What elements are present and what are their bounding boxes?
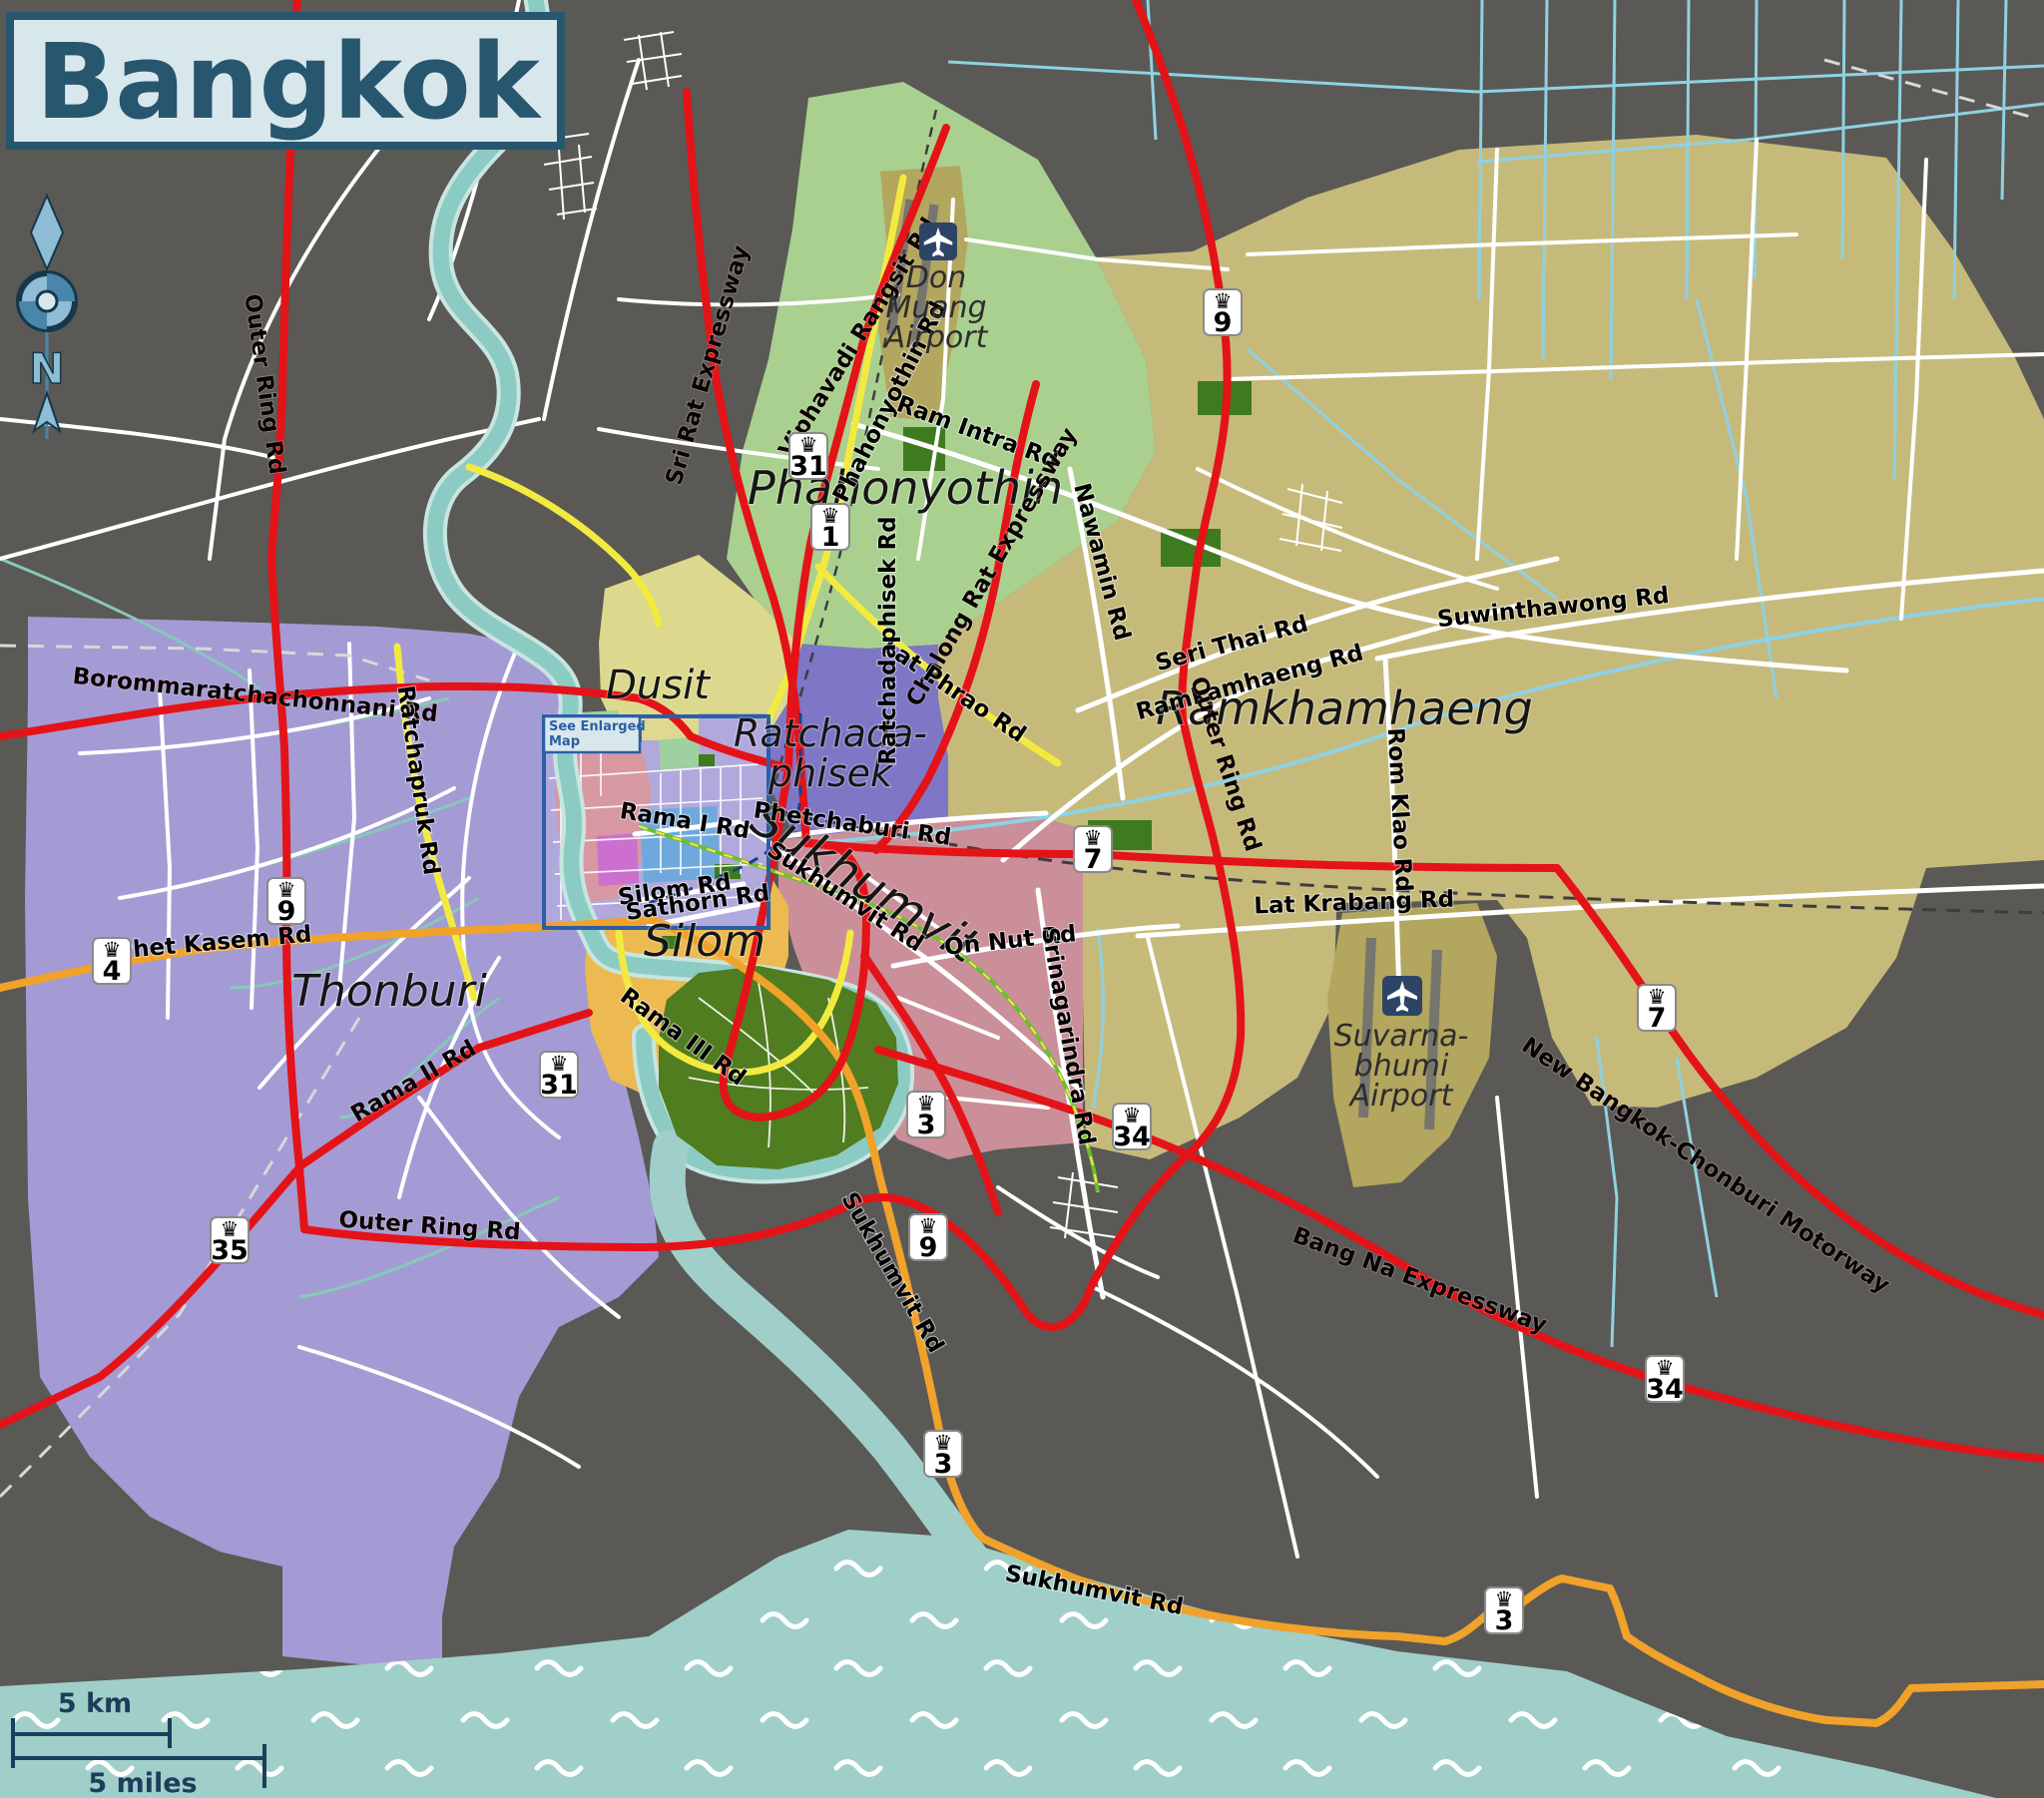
svg-text:3: 3 xyxy=(917,1110,936,1140)
map-title: Bangkok xyxy=(10,16,561,146)
inner-magenta-patch xyxy=(597,833,639,886)
svg-text:34: 34 xyxy=(1646,1374,1684,1405)
svg-text:34: 34 xyxy=(1113,1122,1151,1152)
scale-miles-label: 5 miles xyxy=(88,1768,197,1798)
bangkok-map: See Enlarged Map Phahonyothin Ramkhamhae… xyxy=(0,0,2044,1798)
svg-text:35: 35 xyxy=(211,1235,249,1266)
label-ratchadaphisek-rd: Ratchadaphisek Rd xyxy=(875,516,901,764)
svg-text:1: 1 xyxy=(821,522,840,553)
route-shield: ♛9 xyxy=(1204,289,1242,338)
svg-text:9: 9 xyxy=(277,896,296,927)
label-don-muang-3: Airport xyxy=(883,320,989,355)
svg-text:7: 7 xyxy=(1648,1003,1667,1034)
page-title: Bangkok xyxy=(36,21,543,143)
route-shield: ♛35 xyxy=(211,1217,249,1266)
route-shield: ♛3 xyxy=(1485,1587,1523,1636)
svg-text:4: 4 xyxy=(103,956,122,987)
compass-north-label: N xyxy=(29,344,64,393)
route-shield: ♛31 xyxy=(540,1052,578,1101)
svg-text:9: 9 xyxy=(919,1232,938,1263)
label-district-thonburi: Thonburi xyxy=(291,966,487,1017)
enlarged-map-label-line2: Map xyxy=(549,734,580,749)
route-shield: ♛34 xyxy=(1646,1356,1684,1405)
svg-text:31: 31 xyxy=(789,451,827,482)
route-shield: ♛31 xyxy=(789,433,827,482)
svg-text:3: 3 xyxy=(1495,1605,1514,1636)
svg-text:3: 3 xyxy=(934,1449,953,1480)
svg-text:31: 31 xyxy=(540,1070,578,1101)
route-shield: ♛4 xyxy=(93,938,131,987)
svg-text:9: 9 xyxy=(1214,307,1233,338)
route-shield: ♛7 xyxy=(1638,985,1676,1034)
route-shield: ♛34 xyxy=(1113,1104,1151,1152)
route-shield: ♛7 xyxy=(1074,826,1112,875)
route-shield: ♛9 xyxy=(909,1214,947,1263)
enlarged-map-label-line1: See Enlarged xyxy=(549,719,646,734)
svg-text:7: 7 xyxy=(1084,844,1103,875)
route-shield: ♛3 xyxy=(907,1092,945,1140)
scale-km-label: 5 km xyxy=(58,1688,132,1719)
label-suvarnabhumi-3: Airport xyxy=(1348,1079,1454,1114)
route-shield: ♛9 xyxy=(267,878,305,927)
map-canvas: See Enlarged Map Phahonyothin Ramkhamhae… xyxy=(0,0,2044,1798)
route-shield: ♛1 xyxy=(811,504,849,553)
label-district-silom: Silom xyxy=(644,916,766,967)
label-district-dusit: Dusit xyxy=(606,663,711,708)
route-shield: ♛3 xyxy=(924,1431,962,1480)
